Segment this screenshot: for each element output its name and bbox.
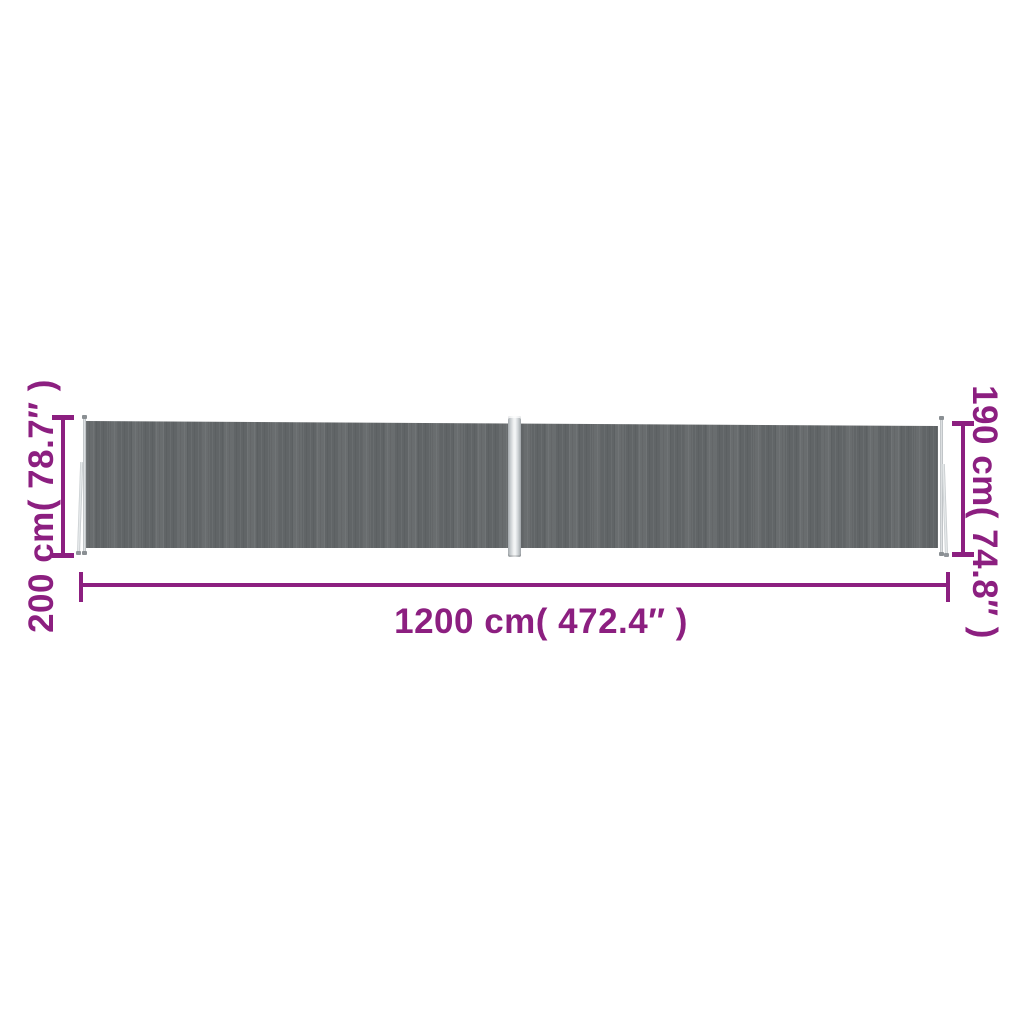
dimension-cap bbox=[946, 572, 950, 602]
product-dimension-diagram: 200 cm( 78.7″ ) 190 cm( 74.8″ ) 1200 cm(… bbox=[0, 0, 1024, 1024]
right-height-dimension-label: 190 cm( 74.8″ ) bbox=[964, 385, 1004, 639]
bottom-width-dimension-label: 1200 cm( 472.4″ ) bbox=[394, 602, 688, 642]
dimension-line bbox=[79, 583, 950, 587]
dimension-cap bbox=[79, 572, 83, 602]
left-end-rod bbox=[83, 417, 86, 553]
bottom-width-dimension-line bbox=[79, 572, 950, 602]
left-height-dimension-label: 200 cm( 78.7″ ) bbox=[22, 379, 62, 633]
center-post bbox=[508, 416, 521, 557]
